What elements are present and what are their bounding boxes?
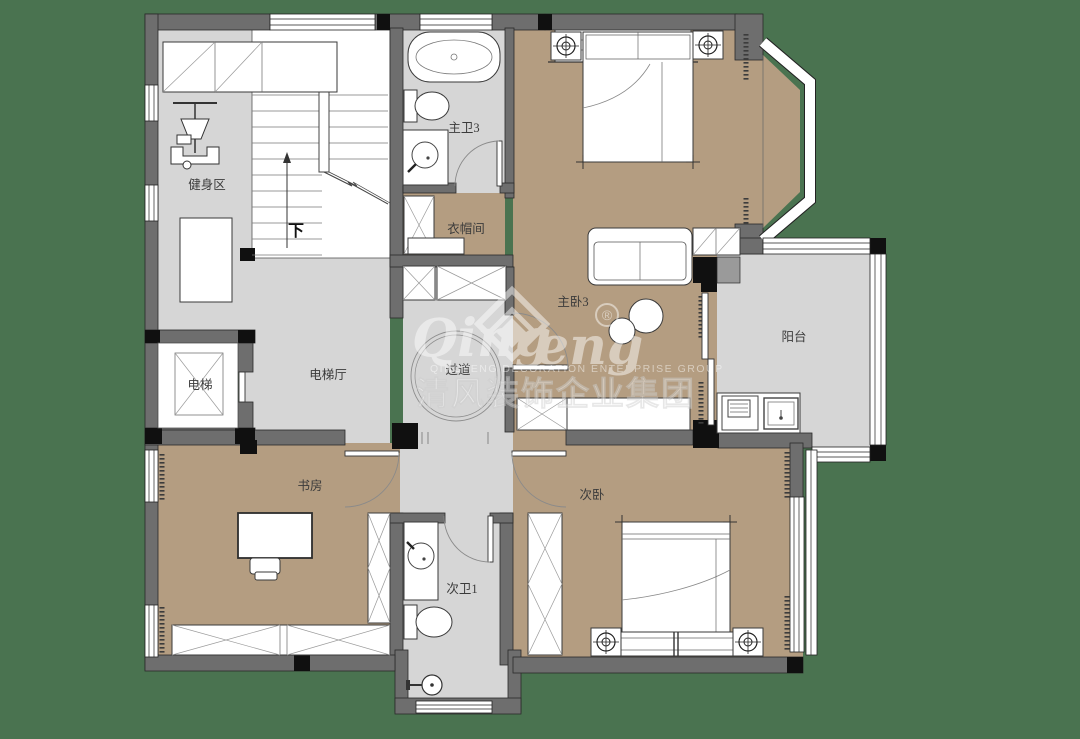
bay-wall-stub-top [735, 14, 763, 60]
registered-mark-letter: ® [602, 307, 613, 323]
ceiling-speaker-icon [551, 32, 581, 60]
ceiling-speaker-icon [693, 31, 723, 59]
shower-floor [408, 655, 508, 703]
window-band [763, 238, 870, 254]
wall-segment [238, 402, 253, 428]
ceiling-speaker-icon [591, 628, 621, 656]
study-label: 书房 [297, 478, 322, 493]
laundry-counter [717, 393, 800, 433]
window-band [812, 447, 870, 462]
gym-label: 健身区 [188, 177, 226, 192]
headboard-icon [617, 632, 735, 656]
corridor-cabinet [403, 266, 506, 300]
second-bedroom-label: 次卧 [579, 488, 604, 502]
column [870, 238, 886, 254]
elevator-door [239, 372, 245, 402]
column [377, 14, 390, 30]
column [145, 428, 162, 444]
wall-study-bottom [145, 655, 395, 671]
wall-bedroom2-bottom [513, 657, 803, 673]
second-bath-label: 次卫1 [446, 582, 477, 596]
floor-plan-stage: 下 [0, 0, 1080, 739]
elevator-label: 电梯 [187, 378, 212, 392]
sink-icon [404, 522, 438, 600]
wall-segment [500, 513, 513, 665]
wall-segment [490, 513, 513, 523]
gym-closet [163, 42, 337, 92]
bookshelf-icon [172, 625, 390, 655]
floor-plan-svg: 下 [0, 0, 1080, 739]
wall-segment [145, 14, 270, 30]
column [693, 420, 719, 448]
tall-cabinet-icon [368, 513, 390, 623]
master-bath-label: 主卫3 [448, 121, 479, 135]
gym-mat [180, 218, 232, 302]
ceiling-speaker-icon [733, 628, 763, 656]
column [392, 423, 418, 449]
column [538, 14, 552, 30]
wardrobe-icon [528, 513, 562, 655]
tv-cabinet [693, 228, 740, 283]
elevator-hall-label: 电梯厅 [309, 368, 347, 382]
toilet-icon [404, 605, 452, 639]
window-band [870, 254, 886, 445]
toilet-icon [404, 90, 449, 122]
wall-segment [238, 343, 253, 372]
sofa-icon [588, 228, 692, 285]
window-band [270, 14, 375, 30]
watermark-tagline: QINGFENG DECORATION ENTERPRISE GROUP [430, 363, 724, 375]
column [240, 248, 255, 261]
watermark-company-name: 清风装饰企业集团 [416, 375, 696, 412]
elevator-hall-floor [245, 255, 390, 443]
column [787, 657, 803, 673]
wall-cloak-corridor [390, 255, 513, 267]
column [294, 655, 310, 671]
column [145, 330, 160, 343]
bed-icon [615, 515, 737, 632]
window-band [145, 85, 158, 121]
wall-bedroom2-top [566, 430, 693, 445]
sink-icon [403, 130, 448, 185]
cloakroom-dresser [408, 238, 464, 254]
wall-segment [492, 14, 545, 30]
stairs-down-label: 下 [288, 223, 304, 240]
window-band [416, 701, 492, 713]
window-band [145, 450, 158, 502]
window-band [145, 185, 158, 221]
wall-segment [390, 513, 403, 665]
wall-stairs-bath-divider [390, 28, 403, 318]
column [238, 330, 255, 343]
bathtub-icon [408, 32, 500, 82]
bed-icon [576, 32, 700, 169]
column [870, 445, 886, 461]
balcony-label: 阳台 [781, 329, 806, 344]
cloakroom-label: 衣帽间 [447, 221, 485, 236]
wall-segment [505, 28, 514, 198]
wall-segment [545, 14, 737, 30]
wall-segment [790, 443, 803, 500]
window-band [145, 605, 158, 657]
window-band [420, 14, 492, 30]
column [240, 440, 257, 454]
master-bedroom-label: 主卧3 [557, 295, 588, 309]
